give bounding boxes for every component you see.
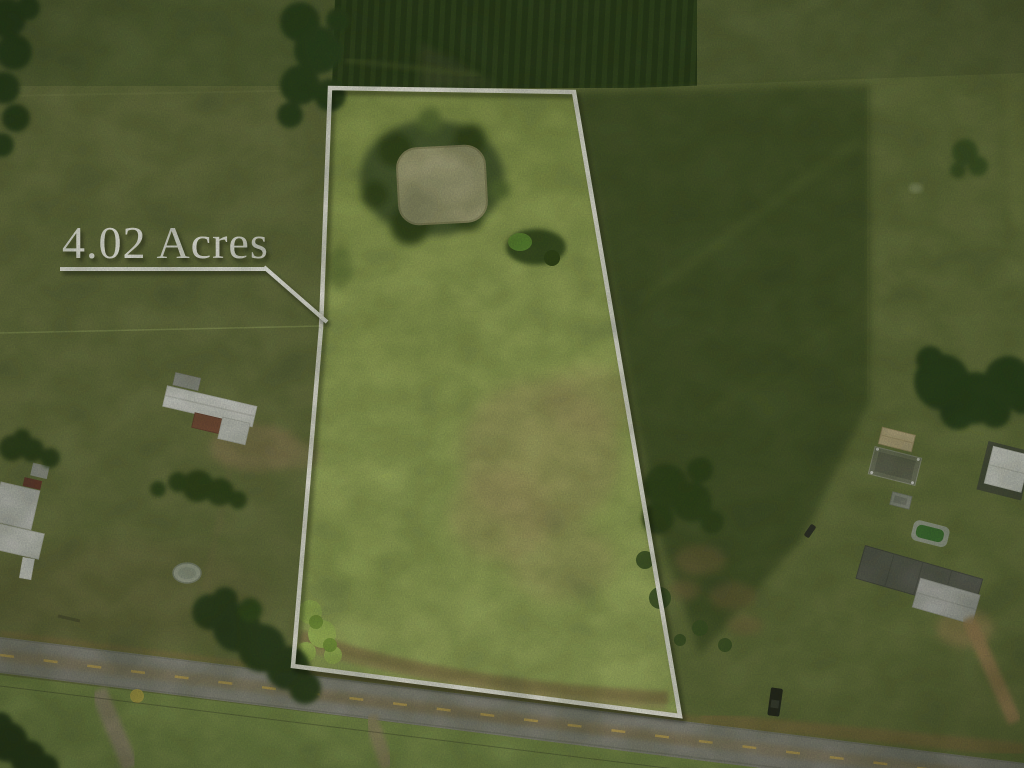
aerial-photo: 4.02 Acres bbox=[0, 0, 1024, 768]
vignette bbox=[0, 0, 1024, 768]
